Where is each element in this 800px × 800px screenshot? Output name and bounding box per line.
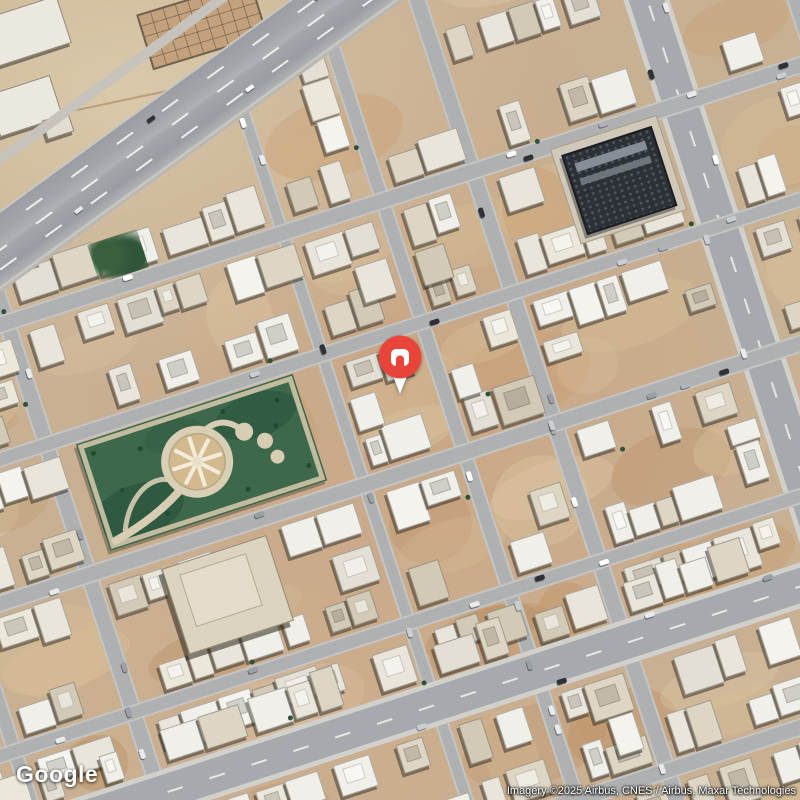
building-roof-detail <box>342 555 368 578</box>
building-roof-detail <box>3 616 28 636</box>
building <box>284 770 326 800</box>
building <box>0 0 72 67</box>
building <box>499 100 532 146</box>
building <box>560 0 602 26</box>
building <box>315 502 363 545</box>
building-roof-detail <box>456 271 470 287</box>
building-roof-detail <box>127 298 152 321</box>
location-marker-pin[interactable] <box>376 333 424 395</box>
dark-roof-building <box>561 126 677 235</box>
building-roof-detail <box>786 89 800 106</box>
building-roof-detail <box>370 440 383 456</box>
building-roof-detail <box>657 410 673 431</box>
building <box>331 544 382 592</box>
building-roof-detail <box>435 201 452 221</box>
building-courtyard <box>179 553 263 627</box>
building <box>108 363 142 406</box>
building-roof-detail <box>763 228 783 247</box>
building-roof-detail <box>569 0 590 12</box>
building-roof-detail <box>0 348 8 369</box>
building-roof-detail <box>115 372 132 392</box>
building-roof-detail <box>758 524 773 540</box>
building-roof-detail <box>429 478 451 496</box>
building-roof-detail <box>293 688 310 707</box>
building-roof-detail <box>567 85 588 108</box>
building-roof-detail <box>704 391 727 411</box>
building-roof-detail <box>85 311 105 329</box>
building-roof-detail <box>353 598 370 615</box>
building <box>784 300 800 331</box>
building <box>604 501 636 544</box>
building-roof-detail <box>342 763 366 784</box>
building-roof-detail <box>403 745 421 763</box>
building-roof-detail <box>541 298 563 316</box>
building-roof-detail <box>692 289 709 304</box>
building <box>694 382 739 424</box>
building-roof-detail <box>594 683 621 707</box>
building-roof-detail <box>161 288 174 303</box>
building-roof-detail <box>506 110 522 132</box>
building <box>575 419 617 457</box>
car <box>245 84 255 93</box>
building-roof-detail <box>314 240 340 263</box>
building-roof-detail <box>551 338 573 354</box>
building-roof-detail <box>167 358 189 378</box>
building-roof-detail <box>56 690 74 709</box>
building-roof-detail <box>331 608 345 623</box>
building-roof-detail <box>550 233 574 253</box>
building <box>29 323 67 368</box>
building-roof-detail <box>265 322 287 345</box>
building-roof-detail <box>540 3 553 20</box>
building-roof-detail <box>232 340 253 358</box>
building-roof-detail <box>208 209 226 229</box>
building-roof-detail <box>603 283 619 304</box>
building-roof-detail <box>381 654 405 677</box>
building-roof-detail <box>782 682 800 704</box>
building-roof-detail <box>51 538 74 559</box>
building-roof-detail <box>28 556 43 572</box>
building-roof-detail <box>0 387 8 404</box>
building-roof-detail <box>104 758 117 774</box>
building <box>395 737 431 774</box>
building-roof-detail <box>353 360 374 377</box>
building-roof-detail <box>503 385 531 410</box>
google-logo[interactable]: Google <box>16 761 98 788</box>
building-roof-detail <box>567 693 582 709</box>
building-roof-detail <box>632 581 654 600</box>
building-roof-detail <box>588 747 603 766</box>
building-roof-detail <box>542 613 561 631</box>
building-roof-detail <box>470 399 489 420</box>
building <box>0 545 16 595</box>
home-door <box>396 356 404 367</box>
imagery-attribution: Imagery ©2025 Airbus, CNES / Airbus, Max… <box>507 785 796 797</box>
building <box>157 349 200 390</box>
building-roof-detail <box>166 663 185 680</box>
building-roof-detail <box>482 625 500 646</box>
building-roof-detail <box>538 491 560 513</box>
building <box>332 753 379 797</box>
building-roof-detail <box>611 510 627 531</box>
building-roof-detail <box>264 791 283 800</box>
building-roof-detail <box>743 449 761 471</box>
building <box>450 264 479 297</box>
car <box>146 115 156 124</box>
building <box>445 23 475 61</box>
building-roof-detail <box>117 583 139 604</box>
building-roof-detail <box>490 317 509 336</box>
building-roof-detail <box>147 575 161 591</box>
satellite-map[interactable]: Google Imagery ©2025 Airbus, CNES / Airb… <box>0 0 800 800</box>
